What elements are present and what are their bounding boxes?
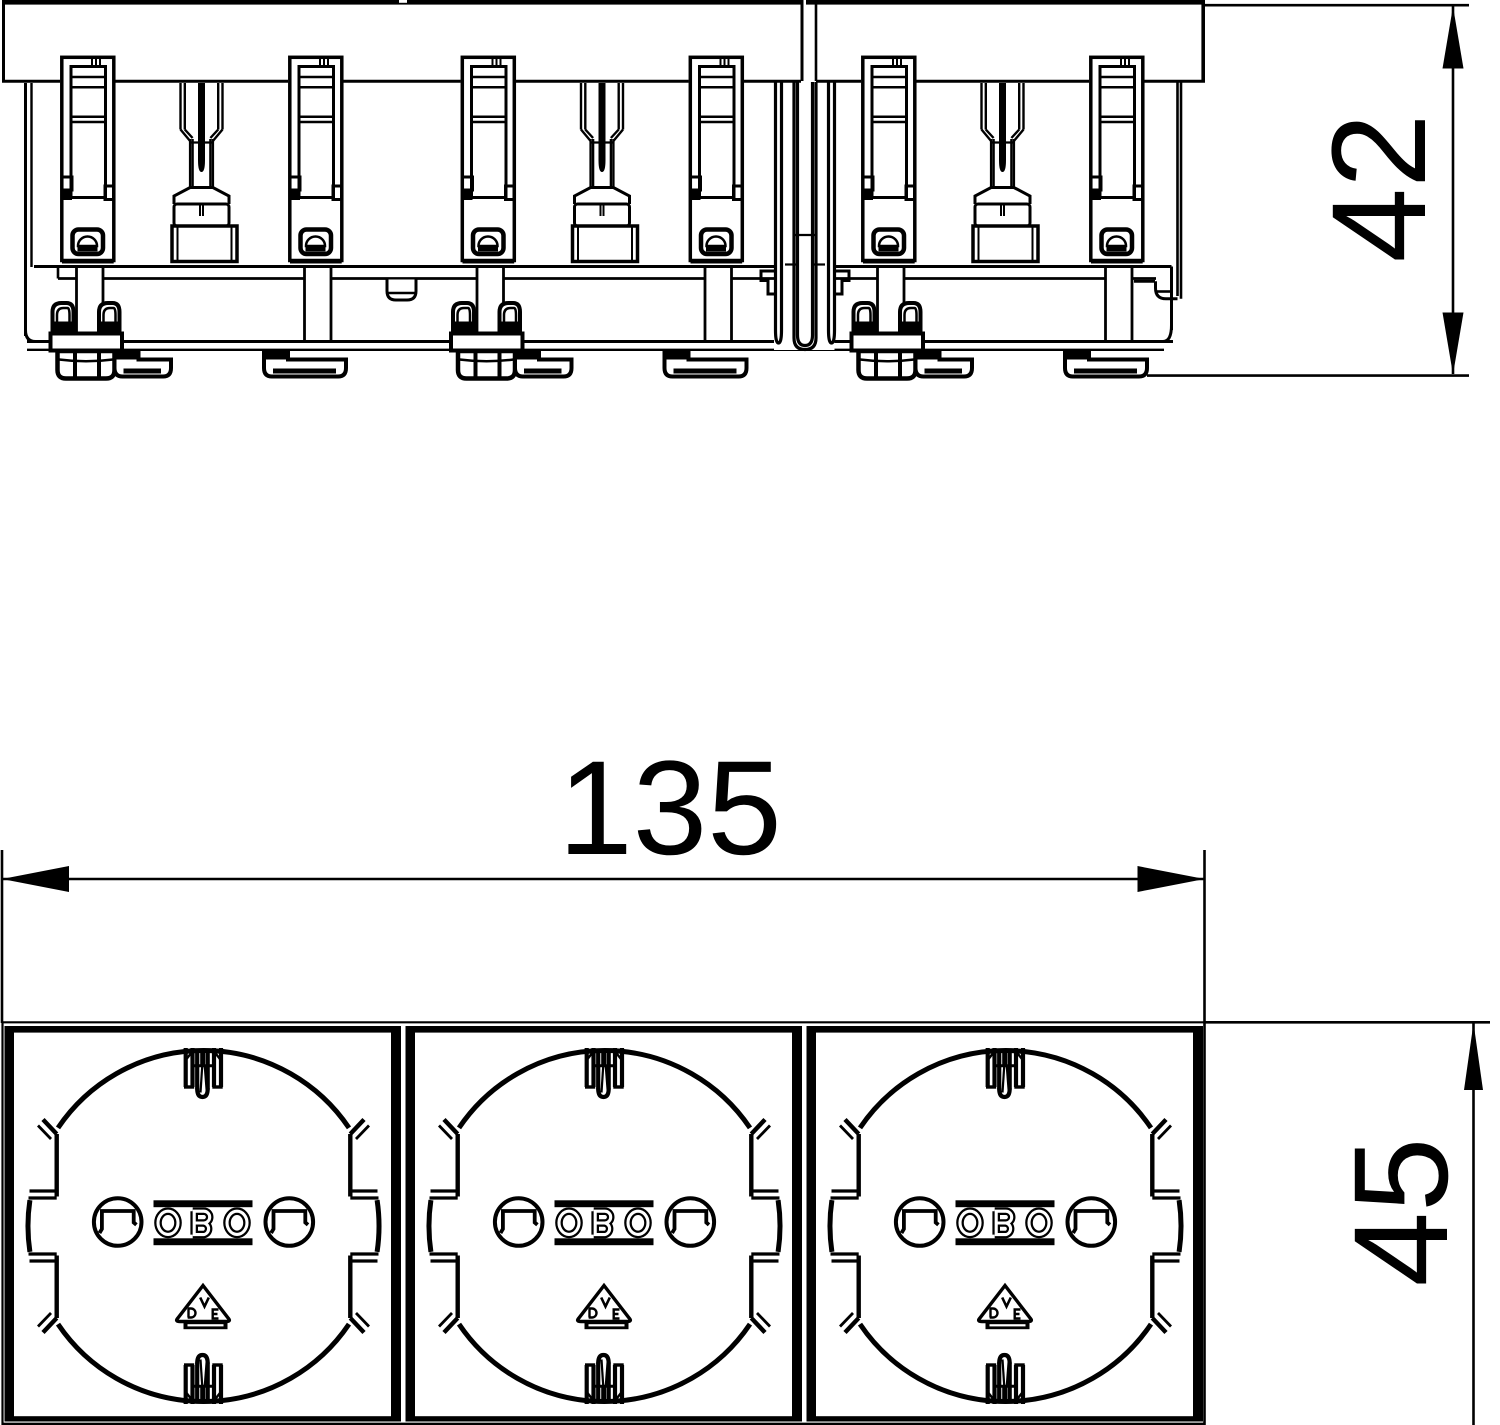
- svg-text:42: 42: [1305, 113, 1454, 262]
- svg-text:135: 135: [558, 734, 782, 883]
- svg-text:45: 45: [1327, 1137, 1476, 1286]
